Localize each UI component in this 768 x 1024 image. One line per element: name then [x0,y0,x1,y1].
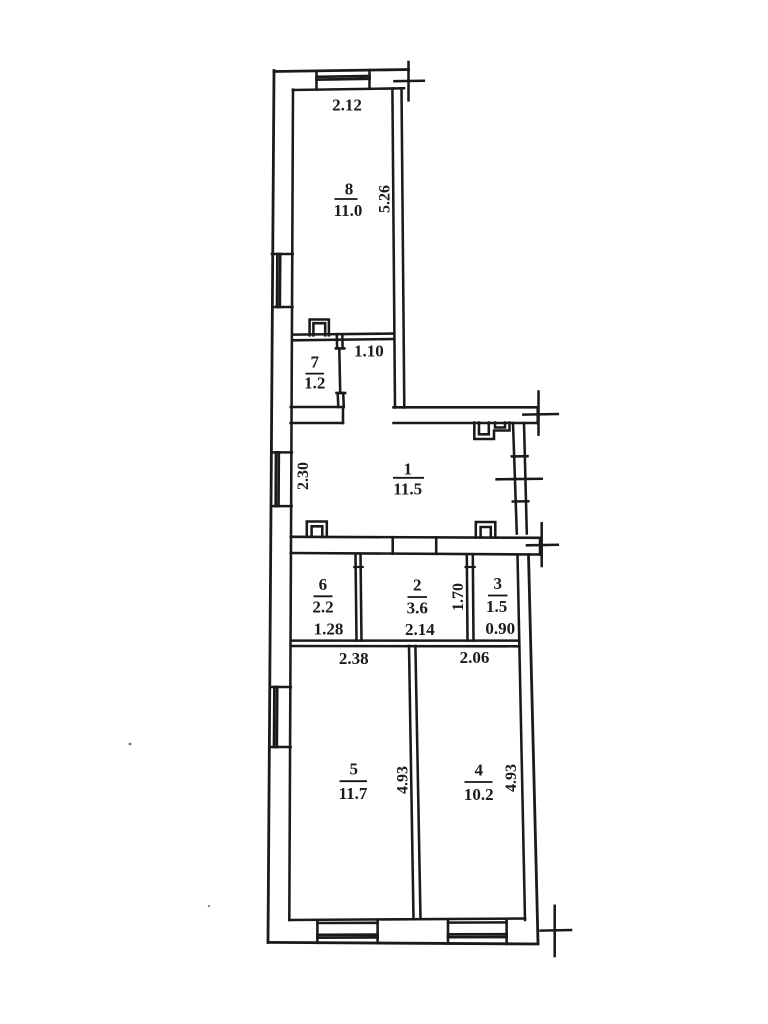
svg-text:2.2: 2.2 [312,598,333,617]
svg-text:1.28: 1.28 [314,620,344,639]
svg-text:1.10: 1.10 [354,342,384,361]
svg-text:1.2: 1.2 [304,374,325,393]
svg-text:7: 7 [310,353,319,372]
svg-text:2.14: 2.14 [405,620,435,639]
svg-text:3: 3 [493,574,502,593]
svg-text:1.5: 1.5 [486,597,507,616]
svg-text:4.93: 4.93 [503,764,520,792]
svg-text:2.12: 2.12 [332,96,362,115]
svg-text:11.7: 11.7 [339,784,368,803]
svg-text:10.2: 10.2 [464,785,494,804]
svg-text:5: 5 [350,760,359,779]
svg-text:2.38: 2.38 [339,649,369,668]
svg-text:4.93: 4.93 [394,766,411,794]
svg-text:6: 6 [319,575,328,594]
svg-text:4: 4 [475,761,484,780]
svg-text:11.5: 11.5 [393,480,422,499]
svg-text:1.70: 1.70 [450,583,467,611]
svg-text:0.90: 0.90 [485,619,515,638]
svg-text:2.06: 2.06 [460,648,490,667]
svg-text:2: 2 [413,576,422,595]
svg-text:3.6: 3.6 [407,599,428,618]
svg-text:2.30: 2.30 [295,462,312,490]
svg-text:11.0: 11.0 [334,201,363,220]
svg-text:5.26: 5.26 [377,185,394,213]
svg-text:8: 8 [345,180,354,199]
svg-text:1: 1 [403,460,412,479]
